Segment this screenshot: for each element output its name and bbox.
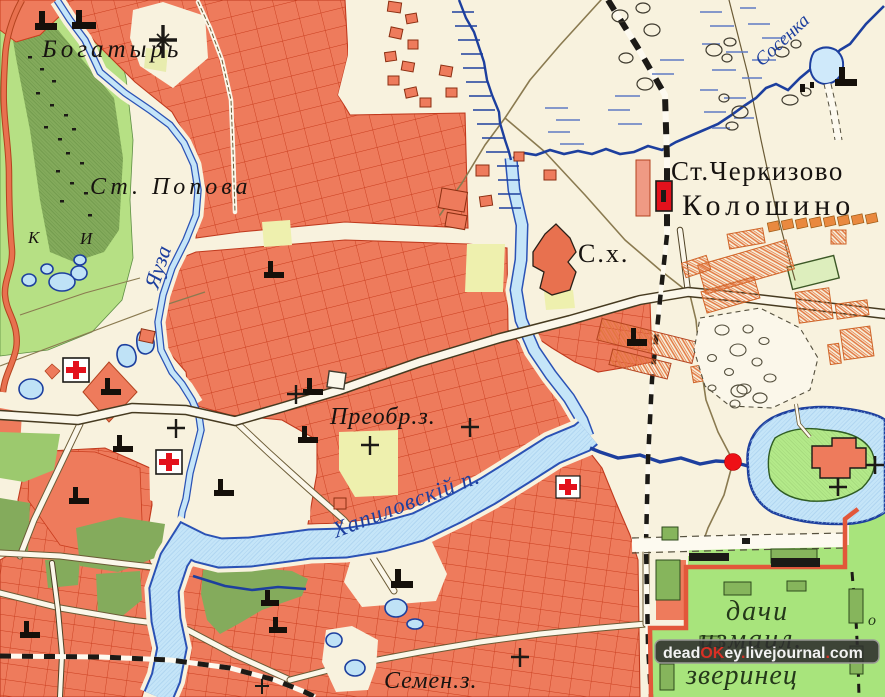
svg-text:И: И	[79, 229, 94, 248]
svg-text:зверинец: зверинец	[685, 660, 798, 691]
svg-text:Ст. Попова: Ст. Попова	[90, 174, 252, 200]
svg-text:дачи: дачи	[726, 596, 789, 627]
svg-text:С.х.: С.х.	[578, 239, 629, 268]
svg-text:Богатырь: Богатырь	[41, 36, 182, 63]
svg-text:Преобр.з.: Преобр.з.	[329, 404, 436, 430]
svg-text:о: о	[868, 612, 876, 629]
svg-text:Семен.з.: Семен.з.	[384, 668, 477, 694]
svg-text:deadOKey.livejournal.com: deadOKey.livejournal.com	[663, 645, 863, 662]
svg-text:Колошино: Колошино	[682, 189, 855, 222]
svg-text:К: К	[27, 228, 41, 247]
svg-text:Ст.Черкизово: Ст.Черкизово	[671, 156, 844, 186]
